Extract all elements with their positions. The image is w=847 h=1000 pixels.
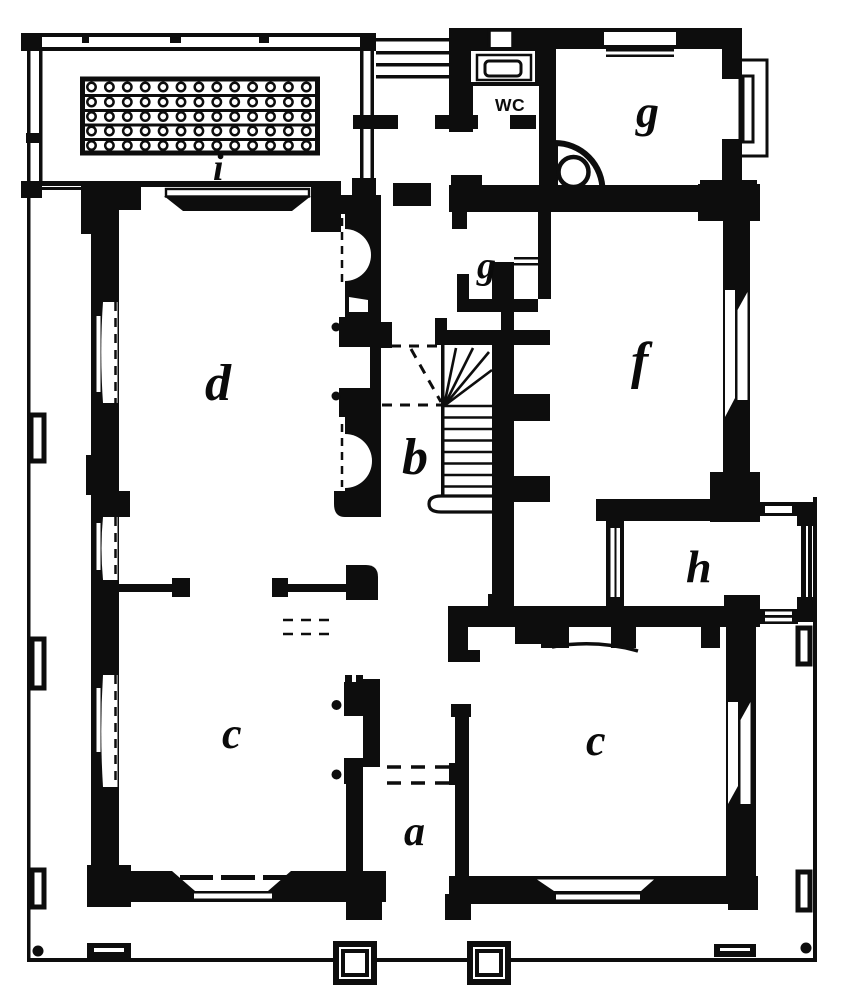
svg-text:h: h [686, 541, 712, 592]
svg-text:b: b [402, 429, 428, 486]
svg-text:g: g [635, 86, 659, 137]
svg-text:WC: WC [495, 95, 525, 115]
svg-text:a: a [404, 809, 425, 855]
svg-text:d: d [205, 355, 232, 412]
svg-text:c: c [586, 716, 606, 765]
svg-text:g: g [476, 245, 496, 287]
svg-text:c: c [222, 709, 242, 758]
